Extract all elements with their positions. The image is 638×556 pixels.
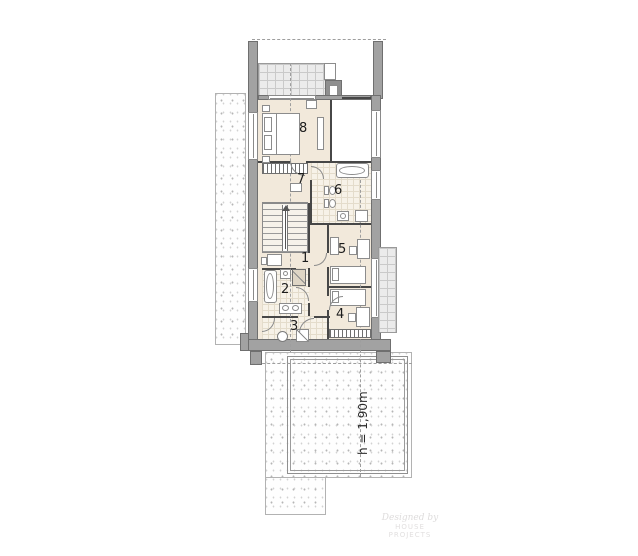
bathtub-basin-room2: [266, 273, 274, 299]
stairs-arrow-icon: [282, 205, 290, 211]
stairs-arrow-stem: [285, 209, 286, 249]
roof-edge-dashed-line-bottom: [252, 363, 412, 364]
wall-room5-room4: [327, 286, 371, 288]
room-label-7: 7: [297, 173, 305, 186]
watermark-line1: Designed by: [373, 513, 447, 523]
sink-basin-room6: [340, 213, 346, 219]
wall-room3-top-b: [314, 316, 330, 318]
window-right-1: [371, 110, 381, 158]
desk-icon-room5: [357, 239, 370, 259]
floor-plan-canvas: 1 2 3 4 5 6 7 8 h = 1,90m Designed by HO…: [0, 0, 638, 556]
wall-bath2-right-b: [308, 303, 310, 316]
pillow-icon-room5: [332, 268, 339, 281]
window-left-2: [248, 268, 258, 302]
window-right-2: [371, 170, 381, 200]
window-left-1: [248, 112, 258, 160]
wall-bath6-bottom: [311, 223, 371, 225]
room-label-1: 1: [301, 252, 309, 265]
cabinet-icon-room6: [355, 210, 368, 222]
room-label-8: 8: [299, 122, 307, 135]
washing-machine-icon-room3: [277, 331, 288, 342]
pillow-icon-room8-a: [264, 117, 272, 132]
desk-icon-room4: [356, 307, 370, 327]
room-label-5: 5: [338, 243, 346, 256]
nightstand-icon-room8-top: [262, 105, 270, 112]
room-label-3: 3: [290, 320, 298, 333]
exterior-wall-bottom: [248, 339, 391, 351]
bidet-bowl-room6: [329, 199, 336, 208]
room-label-2: 2: [281, 283, 289, 296]
chair-icon-room5: [349, 246, 357, 255]
void-area: [330, 100, 371, 161]
table-icon-hall: [267, 254, 282, 266]
wall-corridor-right-b: [327, 267, 329, 296]
wall-chimney-right: [342, 97, 371, 99]
nightstand-icon-room8-bottom: [262, 156, 270, 163]
bathtub-basin-room6: [339, 166, 365, 175]
terrace-top: [258, 63, 327, 96]
height-annotation: h = 1,90m: [356, 395, 370, 455]
wall-bath6-left: [310, 180, 312, 225]
wall-stairs-right: [308, 203, 310, 253]
cabinet-icon-room8: [306, 100, 317, 109]
roof-edge-dashed-line-top: [252, 39, 386, 40]
watermark-line2: HOUSE PROJECTS: [373, 523, 447, 539]
room-label-4: 4: [336, 308, 344, 321]
blanket-line-room8: [276, 114, 277, 154]
wall-corridor-right-a: [327, 225, 329, 253]
roof-inner-frame: [287, 356, 408, 474]
shelf-icon-room8: [317, 117, 324, 150]
shower-icon-room2: [292, 269, 306, 286]
wall-bath2-right-a: [308, 268, 310, 287]
vanity-basin-room2-b: [292, 305, 299, 311]
balcony-right: [378, 247, 397, 333]
pillar-bottom-right: [376, 351, 391, 363]
terrace-notch: [324, 63, 336, 80]
chair-icon-room4: [348, 313, 356, 322]
roof-area-left: [215, 93, 246, 345]
watermark: Designed by HOUSE PROJECTS: [373, 513, 447, 539]
wall-room8-void: [330, 100, 332, 162]
wardrobe-icon-room4: [329, 329, 371, 338]
vanity-basin-room2-a: [282, 305, 289, 311]
exterior-pillar-top-right: [373, 41, 383, 99]
chair-icon-hall: [261, 257, 267, 265]
pillow-icon-room8-b: [264, 135, 272, 150]
room-label-6: 6: [334, 184, 342, 197]
sink-basin-room2: [283, 271, 288, 276]
corner-block-left: [240, 333, 249, 351]
